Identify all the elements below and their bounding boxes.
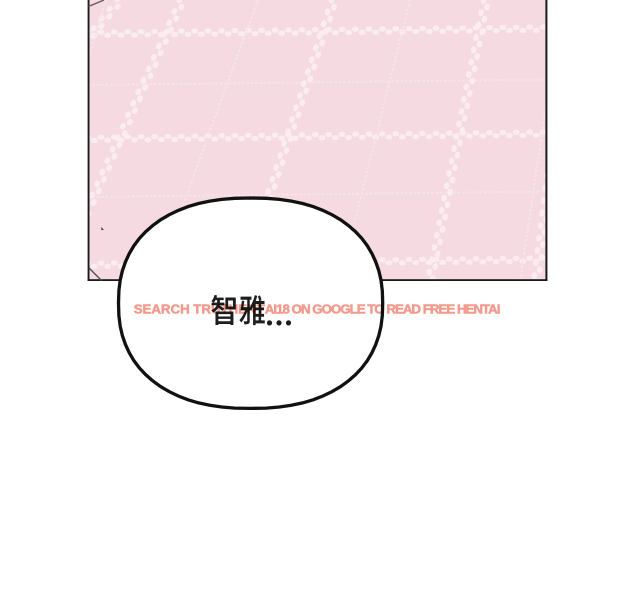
svg-text:AI18 ON GOOGLE TO READ FREE HE: AI18 ON GOOGLE TO READ FREE HENTAI xyxy=(265,301,501,316)
svg-text:SEARCH TRUTHENT: SEARCH TRUTHENT xyxy=(134,301,265,316)
